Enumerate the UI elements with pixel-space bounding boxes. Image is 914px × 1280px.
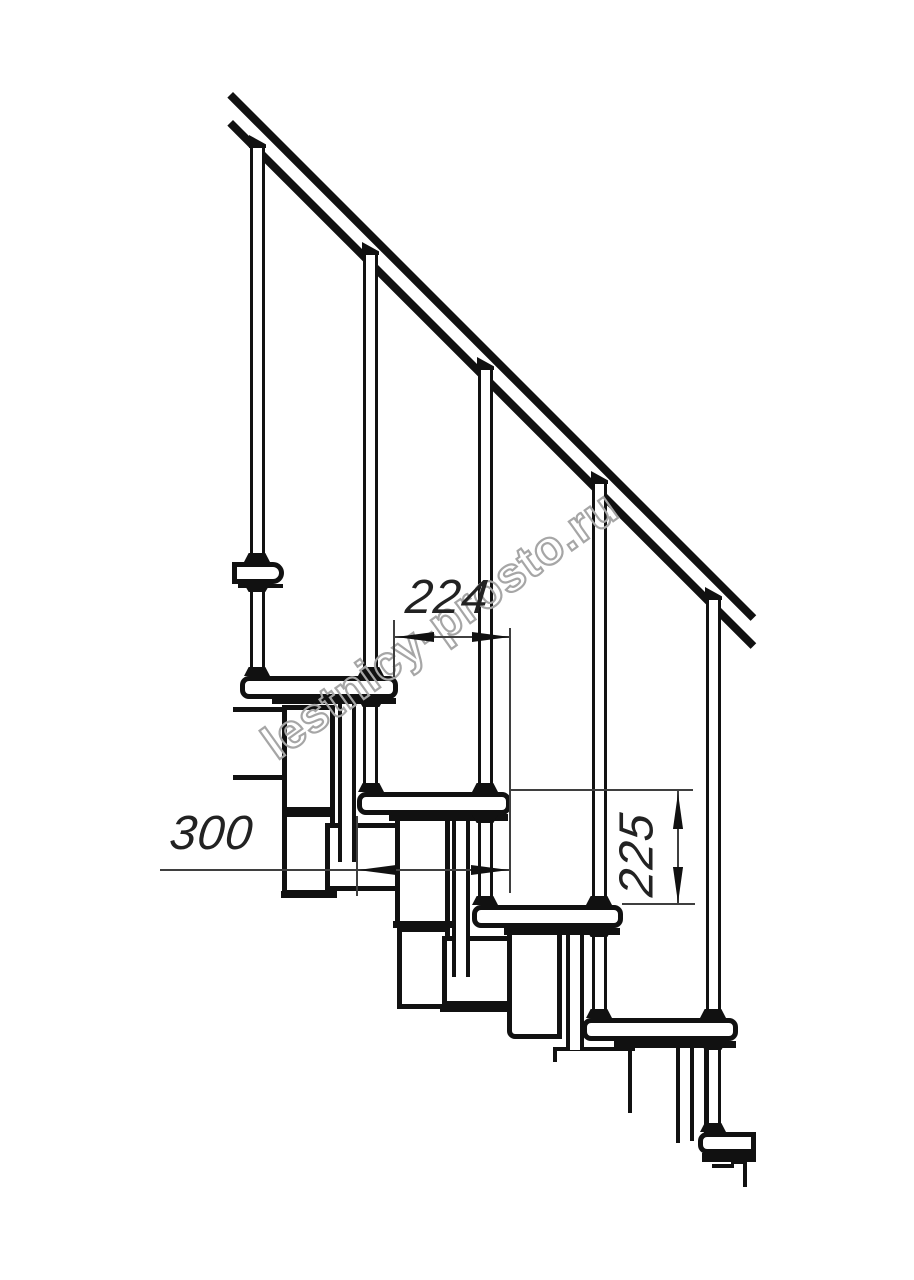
arrow-224-right — [472, 631, 510, 643]
dim-label-225: 225 — [610, 797, 665, 913]
dimension-layer: 224 300 225 — [0, 0, 914, 1280]
dim-label-300: 300 — [167, 806, 256, 861]
dim-label-224: 224 — [403, 570, 492, 625]
ext-line-224-left — [393, 620, 395, 677]
ext-line-300-left — [356, 816, 358, 896]
arrow-224-left — [396, 631, 434, 643]
dim-line-300 — [160, 869, 510, 871]
ext-line-224-300-right — [509, 628, 511, 893]
arrow-225-down — [672, 867, 684, 903]
ext-line-225-top — [510, 789, 693, 791]
arrow-225-up — [672, 793, 684, 829]
arrow-300-right — [471, 864, 509, 876]
staircase-drawing-canvas: lestnicy-prosto.ru 224 300 225 — [0, 0, 914, 1280]
arrow-300-left — [358, 864, 396, 876]
